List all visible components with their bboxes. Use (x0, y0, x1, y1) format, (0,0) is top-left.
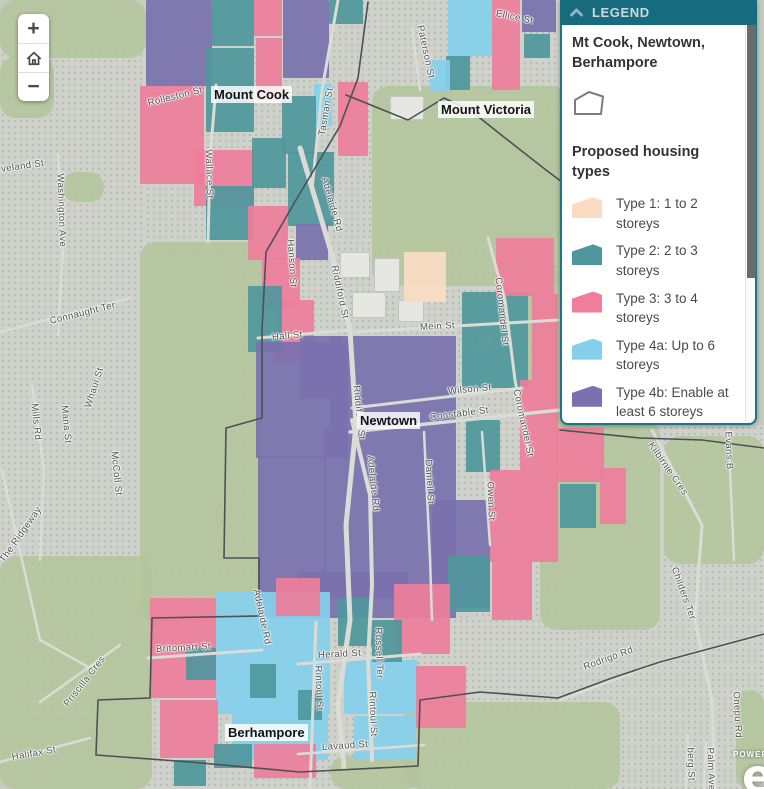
legend-header[interactable]: LEGEND (560, 0, 757, 25)
street-label: Childers Ter (669, 566, 698, 622)
legend-panel: LEGEND Mt Cook, Newtown, Berhampore Prop… (560, 0, 757, 425)
street-label: Mein St (420, 320, 456, 333)
legend-swatch (572, 339, 602, 360)
street-label: Wallace St (203, 149, 216, 198)
street-label: Tasman St (317, 87, 336, 137)
street-label: Constable St (429, 405, 489, 423)
zoom-controls: + − (18, 14, 49, 101)
street-label: Rolleston St (147, 85, 204, 109)
legend-swatch (572, 292, 602, 313)
legend-item: Type 2: 2 to 3 storeys (572, 241, 740, 280)
street-label: Whaui St (83, 366, 106, 409)
street-label: Adelaide Rd (319, 176, 345, 233)
street-label: Hall St (272, 329, 304, 343)
legend-section-title: Proposed housing types (572, 143, 740, 182)
legend-item-label: Type 4a: Up to 6 storeys (616, 336, 740, 375)
street-label: Lavaud St (322, 739, 369, 753)
street-label: Adelaide Rd (365, 455, 382, 512)
street-label: Kilbirnie Cres (645, 440, 690, 497)
esri-logo: e (742, 756, 764, 789)
legend-item: Type 1: 1 to 2 storeys (572, 194, 740, 233)
legend-title: LEGEND (592, 5, 650, 20)
polygon-outline-icon (572, 89, 608, 117)
place-label: Mount Victoria (438, 101, 534, 118)
zoom-in-button[interactable]: + (18, 14, 49, 43)
street-label: Daniell St (423, 459, 436, 504)
street-label: Onepu Rd (731, 691, 744, 738)
home-button[interactable] (18, 43, 49, 72)
street-label: Mana St (59, 405, 74, 444)
street-label: The Ridgeway (0, 505, 44, 565)
street-label: Halifax St (11, 744, 57, 763)
legend-scrollbar-track[interactable] (745, 25, 755, 421)
chevron-up-icon (570, 8, 583, 17)
legend-swatch (572, 386, 602, 407)
legend-item-label: Type 1: 1 to 2 storeys (616, 194, 740, 233)
street-label: Rodrigo Rd (582, 645, 635, 673)
place-label: Mount Cook (211, 86, 292, 103)
street-label: Connaught Ter (49, 300, 117, 327)
place-label: Newtown (357, 412, 420, 429)
street-label: Rintoul St (313, 665, 326, 711)
street-label: Herald St (318, 648, 362, 661)
street-label: Coromandel St (511, 388, 536, 457)
street-label: Coromandel St (493, 277, 511, 346)
street-label: Ellice St (495, 8, 534, 27)
legend-body: Mt Cook, Newtown, Berhampore Proposed ho… (562, 25, 744, 423)
street-label: berg St (685, 747, 697, 781)
legend-scrollbar-thumb[interactable] (747, 25, 756, 278)
street-label: Riddiford St (329, 264, 351, 320)
home-icon (24, 48, 44, 68)
street-label: Owen St (485, 481, 497, 521)
legend-item: Type 3: 3 to 4 storeys (572, 289, 740, 328)
map-canvas[interactable]: Cleveland StWashington AveConnaught TerW… (0, 0, 764, 789)
street-label: Britomart St (156, 641, 211, 655)
street-label: Wilson St (448, 382, 493, 397)
legend-layer-title: Mt Cook, Newtown, Berhampore (572, 34, 740, 73)
street-label: Evans B (723, 431, 735, 470)
place-label: Berhampore (225, 724, 308, 741)
street-label: Priscilla Cres (62, 654, 108, 709)
street-label: Hanson St (285, 239, 299, 288)
legend-swatch (572, 197, 602, 218)
street-label: Russell Ter (373, 627, 386, 679)
street-label: Palm Ave (705, 747, 717, 789)
legend-item: Type 4a: Up to 6 storeys (572, 336, 740, 375)
legend-swatch (572, 244, 602, 265)
street-label: Adelaide Rd (251, 588, 273, 645)
street-label: Mills Rd (29, 403, 44, 441)
street-label: McColl St (109, 451, 125, 496)
zoom-out-button[interactable]: − (18, 72, 49, 101)
legend-item-label: Type 2: 2 to 3 storeys (616, 241, 740, 280)
legend-item-label: Type 4b: Enable at least 6 storeys (616, 383, 740, 422)
legend-item: Type 4b: Enable at least 6 storeys (572, 383, 740, 422)
legend-items: Type 1: 1 to 2 storeysType 2: 2 to 3 sto… (572, 194, 740, 422)
legend-item-label: Type 3: 3 to 4 storeys (616, 289, 740, 328)
street-label: Washington Ave (55, 173, 69, 247)
street-label: Rintoul St (367, 691, 380, 737)
street-label: Paterson St (415, 24, 437, 79)
street-label: Cleveland St (0, 158, 45, 177)
